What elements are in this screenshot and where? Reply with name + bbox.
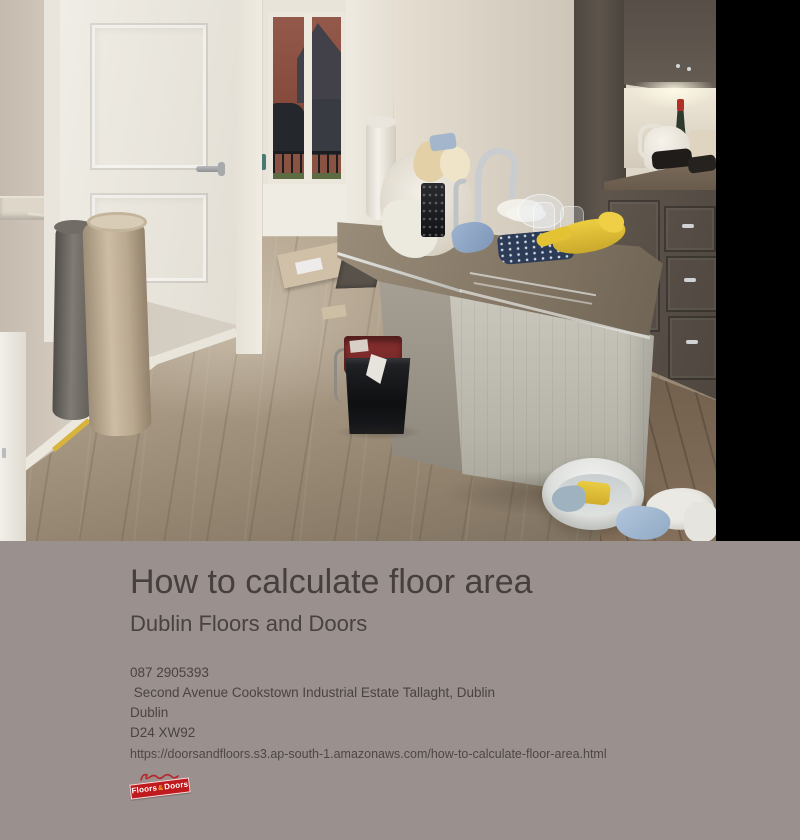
- carpet-roll: [82, 217, 152, 437]
- drawer-panel: [666, 256, 716, 312]
- cabinet-knob: [687, 67, 691, 71]
- address-postcode: D24 XW92: [130, 723, 760, 743]
- cabinet-knob: [676, 64, 680, 68]
- brand-logo: Floors&Doors: [130, 773, 200, 803]
- drawer-handle: [686, 340, 698, 344]
- logo-text-doors: Doors: [164, 780, 189, 792]
- window-sill-wall: [262, 184, 348, 240]
- door-panel-upper: [90, 23, 208, 170]
- carpet-roll-top: [87, 212, 147, 232]
- under-cabinet-light: [632, 82, 716, 110]
- drawer-panel: [664, 206, 716, 252]
- article: How to calculate floor area Dublin Floor…: [0, 541, 800, 803]
- photo-letterbox: [716, 0, 800, 541]
- drawer-handle: [684, 278, 696, 282]
- phone-number: 087 2905393: [130, 663, 760, 683]
- photo-canvas: [0, 0, 716, 541]
- bucket-label: [349, 339, 368, 353]
- contact-block: 087 2905393 Second Avenue Cookstown Indu…: [130, 663, 760, 743]
- page-title: How to calculate floor area: [130, 563, 760, 602]
- drawer-panel: [668, 316, 716, 380]
- page-subtitle: Dublin Floors and Doors: [130, 611, 760, 637]
- kitchen-roll-top: [366, 116, 396, 128]
- photo-kitchen-floor: [0, 0, 800, 541]
- logo-text-floors: Floors: [131, 783, 158, 795]
- door-handle-rose: [218, 162, 225, 176]
- door-frame-right: [236, 0, 262, 354]
- foreground-door-jamb: [0, 332, 26, 541]
- window-mullion: [304, 14, 312, 182]
- page: How to calculate floor area Dublin Floor…: [0, 0, 800, 840]
- door-hinge: [2, 448, 6, 458]
- drawer-handle: [682, 224, 694, 228]
- bottle-cap: [677, 99, 684, 111]
- parked-car-dark: [269, 103, 305, 153]
- source-url: https://doorsandfloors.s3.ap-south-1.ama…: [130, 747, 760, 761]
- address-city: Dublin: [130, 703, 760, 723]
- address-line: Second Avenue Cookstown Industrial Estat…: [130, 683, 760, 703]
- white-rag: [684, 502, 716, 541]
- bucket-shadow: [336, 424, 422, 440]
